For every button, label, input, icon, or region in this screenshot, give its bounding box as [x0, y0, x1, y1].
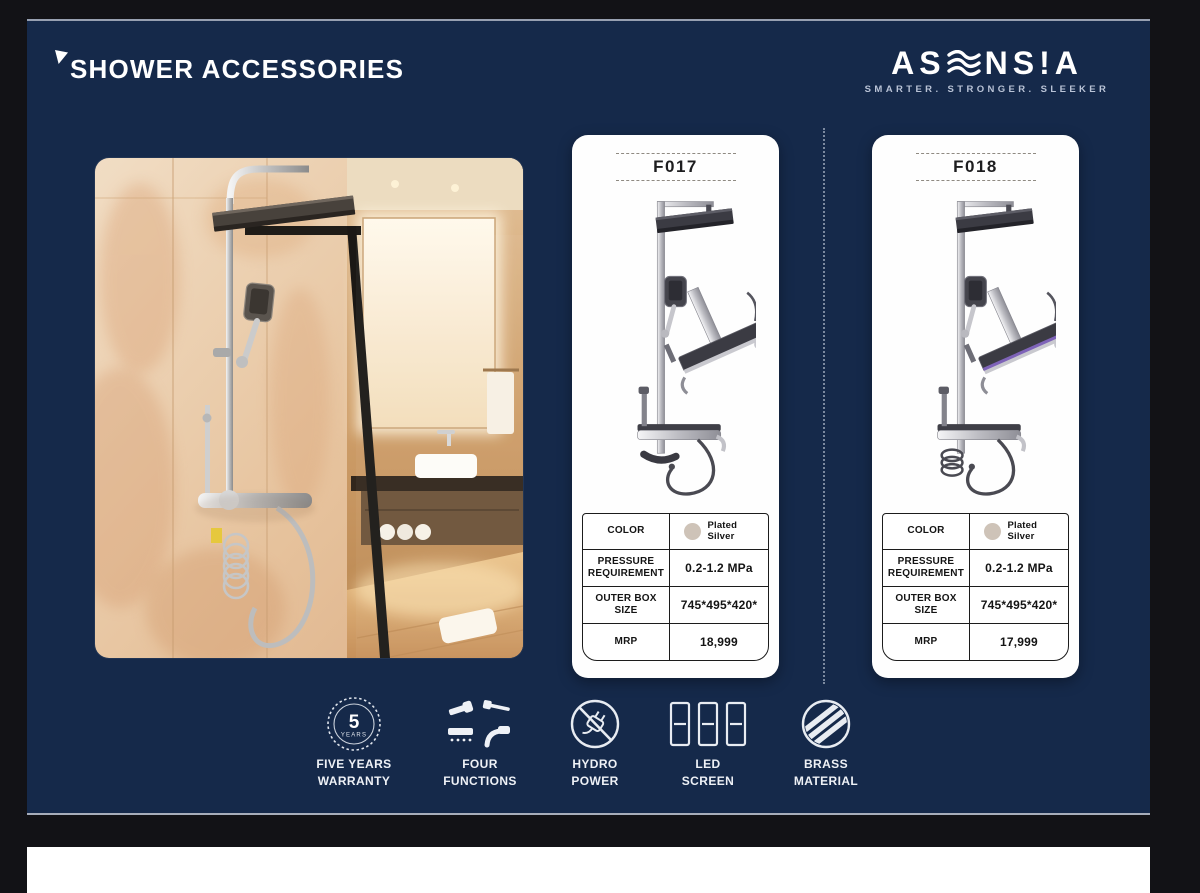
page-title-block: SHOWER ACCESSORIES	[57, 54, 404, 85]
brand-letter-a: A	[1055, 47, 1083, 79]
shower-system-illustration-f017	[596, 187, 756, 499]
product-code-f017: F017	[616, 153, 736, 181]
brand-wave-e-icon	[947, 50, 981, 76]
color-swatch	[684, 523, 701, 540]
spec-label-color: COLOR	[883, 514, 970, 549]
spec-value-mrp-f018: 17,999	[970, 623, 1068, 660]
spec-label-color: COLOR	[583, 514, 670, 549]
product-image-f018	[896, 187, 1056, 499]
feature-led-screen: LED SCREEN	[642, 697, 774, 791]
five-years-warranty-badge-icon: 5 YEARS	[325, 695, 383, 753]
svg-text:5: 5	[349, 712, 360, 733]
brand-letters-as: AS	[891, 47, 945, 79]
page-title: SHOWER ACCESSORIES	[57, 54, 404, 85]
card-separator-dotted-line	[823, 128, 825, 684]
spec-label-box: OUTER BOX SIZE	[583, 586, 670, 623]
spec-label-mrp: MRP	[583, 623, 670, 660]
product-card-f017: F017	[572, 135, 779, 678]
brand-exclamation: !	[1039, 47, 1055, 79]
spec-label-mrp: MRP	[883, 623, 970, 660]
spec-value-mrp-f017: 18,999	[670, 623, 768, 660]
feature-brass-material: BRASS MATERIAL	[760, 697, 892, 791]
brand-letters-ns: NS	[985, 47, 1039, 79]
brand-tagline: SMARTER. STRONGER. SLEEKER	[854, 84, 1120, 95]
spec-value-box-f017: 745*495*420*	[670, 586, 768, 623]
bathroom-photo	[95, 158, 523, 658]
page-canvas: SHOWER ACCESSORIES AS NS ! A SMARTER. ST…	[0, 0, 1200, 893]
spec-label-pressure: PRESSURE REQUIREMENT	[883, 549, 970, 586]
bathroom-scene	[95, 158, 523, 658]
svg-text:YEARS: YEARS	[341, 733, 367, 739]
spec-value-box-f018: 745*495*420*	[970, 586, 1068, 623]
spec-table-f018: COLOR Plated Silver PRESSURE REQUIREMENT…	[882, 513, 1069, 661]
hydro-power-icon	[567, 696, 623, 752]
shower-system-illustration-f018	[896, 187, 1056, 499]
spec-label-pressure: PRESSURE REQUIREMENT	[583, 549, 670, 586]
spec-table-f017: COLOR Plated Silver PRESSURE REQUIREMENT…	[582, 513, 769, 661]
spec-label-box: OUTER BOX SIZE	[883, 586, 970, 623]
four-functions-icon	[446, 699, 514, 749]
product-code-f018: F018	[916, 153, 1036, 181]
brand-logo: AS NS ! A SMARTER. STRONGER. SLEEKER	[854, 47, 1120, 95]
color-swatch	[984, 523, 1001, 540]
product-image-f017	[596, 187, 756, 499]
feature-four-functions: FOUR FUNCTIONS	[414, 697, 546, 791]
brass-material-icon	[798, 696, 854, 752]
slide: SHOWER ACCESSORIES AS NS ! A SMARTER. ST…	[27, 19, 1150, 815]
spec-value-pressure-f017: 0.2-1.2 MPa	[670, 549, 768, 586]
brand-wordmark: AS NS ! A	[854, 47, 1120, 79]
product-card-f018: F018	[872, 135, 1079, 678]
led-screen-icon	[669, 700, 747, 748]
next-slide-strip	[27, 847, 1150, 893]
spec-value-color-f018: Plated Silver	[970, 514, 1068, 549]
spec-value-color-f017: Plated Silver	[670, 514, 768, 549]
feature-five-years-warranty: 5 YEARS FIVE YEARS WARRANTY	[288, 697, 420, 791]
spec-value-pressure-f018: 0.2-1.2 MPa	[970, 549, 1068, 586]
